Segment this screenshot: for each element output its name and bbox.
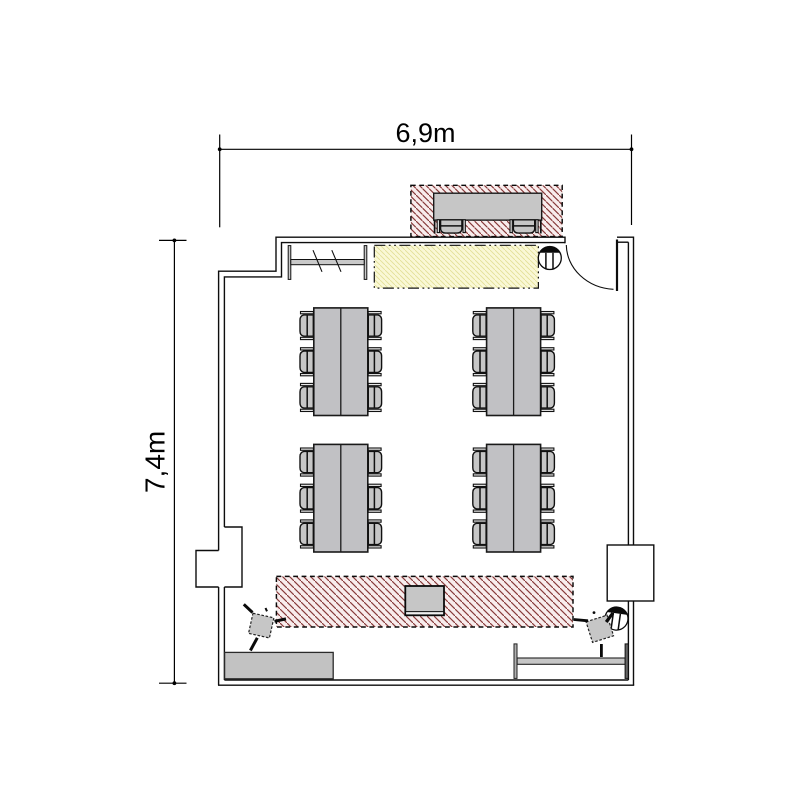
svg-text:6,9m: 6,9m	[395, 118, 455, 148]
svg-text:7,4m: 7,4m	[140, 431, 171, 493]
